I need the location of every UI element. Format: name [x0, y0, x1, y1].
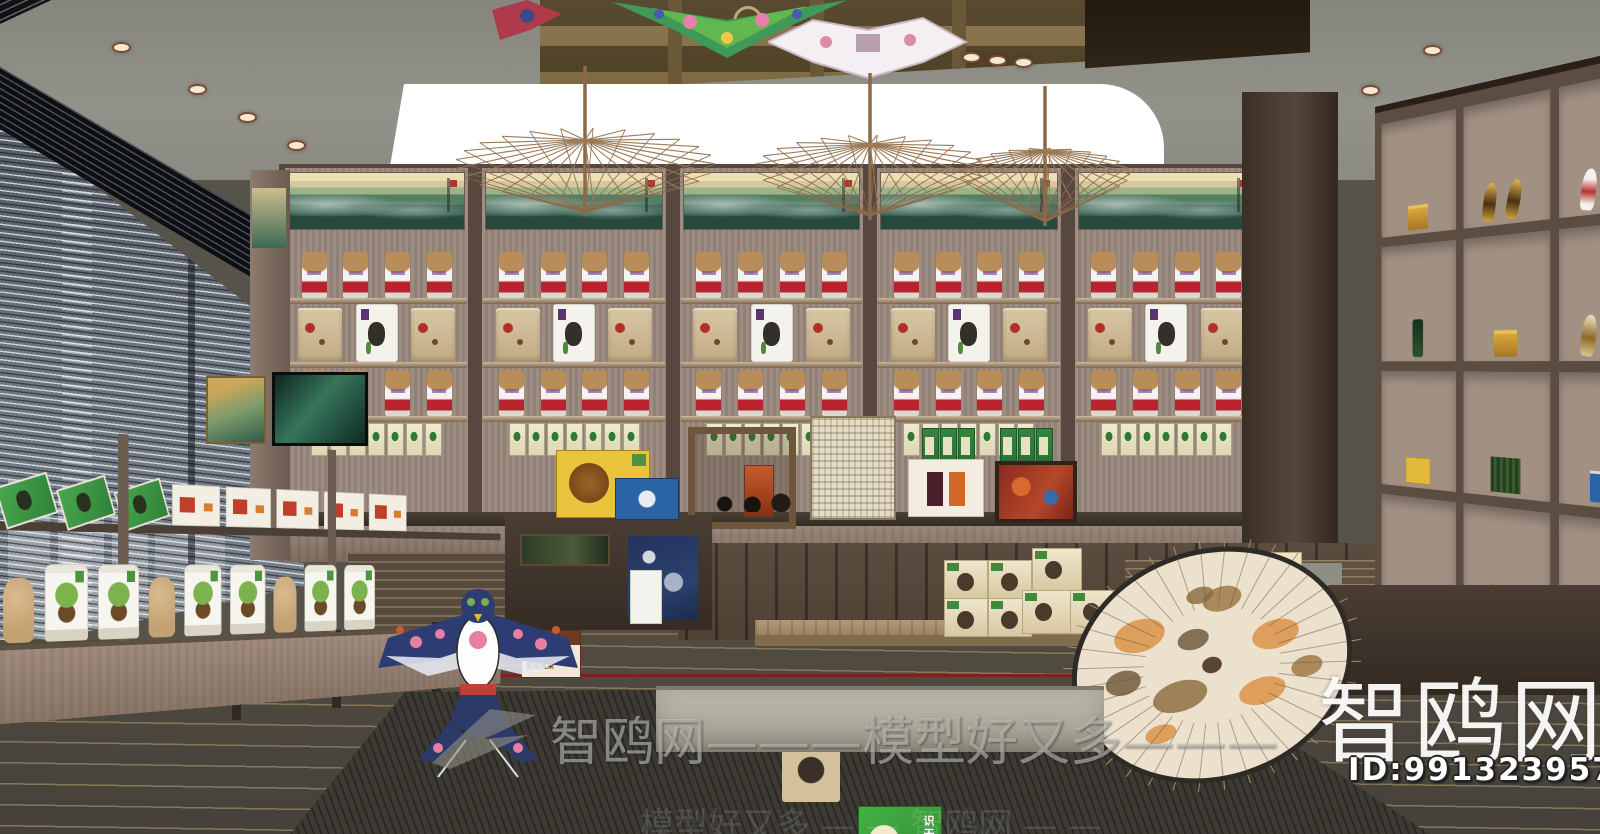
kraft-bag: [496, 308, 540, 362]
downlight: [1361, 85, 1380, 96]
white-bag: [751, 304, 793, 362]
wall-art-sliver: [252, 188, 286, 248]
downlight: [238, 112, 257, 123]
downlight: [188, 84, 207, 95]
shelf-cubby-curve-brown: [1464, 89, 1550, 229]
snack-pouch: [385, 370, 410, 416]
snack-pouch: [780, 252, 805, 298]
small-kite: [492, 0, 562, 46]
large-snack-pouch: [45, 564, 88, 642]
shelf-cubby-box-blue: [1559, 372, 1600, 514]
kraft-bag: [1088, 308, 1132, 362]
snack-pouch: [936, 252, 961, 298]
snack-pouch: [582, 252, 607, 298]
snack-pouch: [1019, 370, 1044, 416]
snack-pouch: [894, 370, 919, 416]
tea-box: [1101, 423, 1118, 456]
kraft-bag: [1003, 308, 1047, 362]
snack-pouch: [1175, 252, 1200, 298]
snack-pouch: [977, 370, 1002, 416]
tv-screen: [272, 372, 368, 446]
tea-box: [1158, 423, 1175, 456]
swallow-kite: [378, 572, 578, 782]
white-bag: [1145, 304, 1187, 362]
shelf-cubby-curve-gold: [1559, 219, 1600, 360]
snack-pouch: [582, 370, 607, 416]
snack-pouch: [780, 370, 805, 416]
snack-pouch: [894, 252, 919, 298]
concrete-produce-bin: [656, 686, 1104, 752]
tea-set: [712, 492, 796, 512]
snack-pouch: [1091, 370, 1116, 416]
snack-pouch: [427, 370, 452, 416]
kraft-bag: [1201, 308, 1245, 362]
snack-pouch: [977, 252, 1002, 298]
white-carton: [276, 489, 318, 529]
gift-box-red: [995, 461, 1077, 523]
white-snack-bag: [630, 570, 662, 624]
snack-pouch: [343, 252, 368, 298]
snack-pouch: [385, 252, 410, 298]
right-corner-column: [1242, 92, 1338, 562]
large-snack-pouch: [184, 565, 221, 637]
snack-pouch: [1175, 370, 1200, 416]
snack-pouch: [1216, 370, 1241, 416]
gift-box-white: [908, 459, 984, 517]
snack-pouch: [1133, 370, 1158, 416]
kraft-sack: [149, 577, 175, 638]
tea-box: [425, 423, 442, 456]
snack-pouch: [1216, 252, 1241, 298]
store-interior-render: 坚果 夏威夷果 识干果: [0, 0, 1600, 834]
tea-box: [1177, 423, 1194, 456]
art-panel: [206, 376, 266, 444]
tea-box: [1139, 423, 1156, 456]
large-snack-pouch: [304, 565, 336, 632]
snack-pouch: [499, 252, 524, 298]
green-carton: [56, 475, 116, 531]
snack-pouch: [1133, 252, 1158, 298]
white-carton: [369, 494, 407, 532]
snack-pouch: [822, 370, 847, 416]
gift-box-blue: [615, 478, 679, 520]
shelf-cubby-curve-red: [1559, 66, 1600, 218]
snack-pouch: [696, 252, 721, 298]
shelf-cubby-box-yellow: [1382, 370, 1457, 491]
snack-pouch: [696, 370, 721, 416]
kraft-bag: [608, 308, 652, 362]
snack-pouch: [822, 252, 847, 298]
white-bag: [553, 304, 595, 362]
kraft-bag: [693, 308, 737, 362]
snack-pouch: [541, 252, 566, 298]
white-carton: [226, 487, 271, 528]
kraft-sack: [274, 577, 297, 633]
snack-pouch: [427, 252, 452, 298]
tea-box: [979, 423, 996, 456]
shelf-cubby-bag-dark: [1382, 240, 1457, 361]
green-carton: [0, 472, 58, 530]
snack-pouch: [738, 370, 763, 416]
snack-pouch: [738, 252, 763, 298]
snack-pouch: [936, 370, 961, 416]
white-bag: [948, 304, 990, 362]
tea-box: [528, 423, 545, 456]
tea-box: [903, 423, 920, 456]
wooden-screen: [688, 427, 796, 529]
gift-box-dark-green: [520, 534, 610, 566]
large-snack-pouch: [230, 565, 265, 635]
paper-umbrella-large: [1052, 535, 1372, 800]
snack-pouch: [302, 252, 327, 298]
shelf-cubby-box-gold: [1382, 109, 1457, 238]
tea-box: [1215, 423, 1232, 456]
stacked-box: [944, 598, 988, 637]
kraft-sack: [3, 578, 34, 644]
kraft-bag: [298, 308, 342, 362]
snack-pouch: [624, 252, 649, 298]
kraft-bag: [806, 308, 850, 362]
snack-pouch: [499, 370, 524, 416]
snack-pouch: [541, 370, 566, 416]
tea-box: [509, 423, 526, 456]
kraft-bag: [411, 308, 455, 362]
shelf-cubby-box-gold: [1464, 230, 1550, 360]
downlight: [112, 42, 131, 53]
snack-pouch: [624, 370, 649, 416]
snack-pouch: [1019, 252, 1044, 298]
large-snack-pouch: [344, 565, 375, 630]
kraft-bag: [891, 308, 935, 362]
stacked-box: [944, 560, 988, 599]
large-snack-pouch: [98, 564, 139, 639]
tea-box: [1196, 423, 1213, 456]
downlight: [1423, 45, 1442, 56]
green-box-label: 识干果: [920, 815, 936, 834]
white-bag: [356, 304, 398, 362]
shelf-cubby-bamboo: [1464, 371, 1550, 502]
snack-pouch: [1091, 252, 1116, 298]
downlight: [287, 140, 306, 151]
dried-fruit-green-box: 识干果: [858, 806, 942, 834]
bamboo-mat: [810, 416, 896, 520]
tea-box: [1120, 423, 1137, 456]
white-carton: [172, 484, 220, 527]
hanging-umbrella-frames: [380, 46, 1170, 236]
